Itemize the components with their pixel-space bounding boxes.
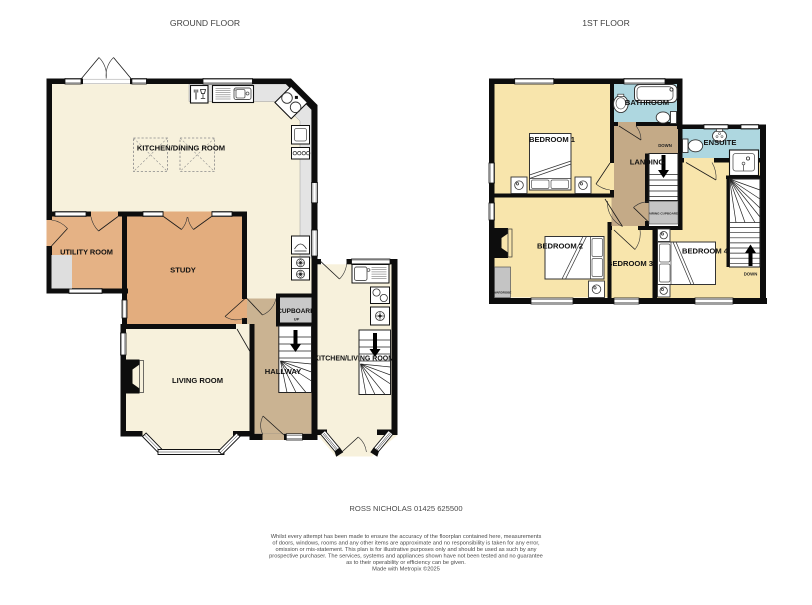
svg-text:of doors, windows, rooms and a: of doors, windows, rooms and any other i…: [272, 540, 540, 546]
svg-text:WARDROBE: WARDROBE: [494, 291, 512, 295]
svg-text:as to their operability or eff: as to their operability or efficiency ca…: [346, 560, 466, 566]
svg-text:omission or mis-statement. Thi: omission or mis-statement. This plan is …: [275, 547, 536, 553]
svg-text:DOWN: DOWN: [658, 143, 672, 148]
svg-text:KITCHEN/DINING ROOM: KITCHEN/DINING ROOM: [137, 144, 225, 153]
svg-text:CUPBOARD: CUPBOARD: [277, 308, 315, 315]
svg-text:DOWN: DOWN: [744, 272, 758, 277]
svg-text:GROUND FLOOR: GROUND FLOOR: [170, 18, 240, 28]
svg-text:ENSUITE: ENSUITE: [704, 138, 737, 147]
svg-text:STUDY: STUDY: [170, 266, 196, 275]
svg-text:Whilst every attempt has been: Whilst every attempt has been made to en…: [271, 534, 542, 540]
svg-text:BEDROOM 3: BEDROOM 3: [607, 259, 653, 268]
svg-text:UP: UP: [294, 317, 300, 322]
svg-text:BEDROOM 4: BEDROOM 4: [682, 247, 729, 256]
svg-text:BATHROOM: BATHROOM: [625, 98, 669, 107]
svg-text:KITCHEN/LIVING ROOM: KITCHEN/LIVING ROOM: [314, 356, 394, 363]
svg-text:HALLWAY: HALLWAY: [265, 367, 301, 376]
svg-text:1ST FLOOR: 1ST FLOOR: [582, 18, 630, 28]
svg-text:Made with Metropix ©2025: Made with Metropix ©2025: [372, 565, 440, 572]
svg-text:prospective purchaser. The ser: prospective purchaser. The services, sys…: [269, 553, 543, 559]
svg-text:AIRING CUPBOARD: AIRING CUPBOARD: [649, 212, 679, 216]
svg-text:BEDROOM 2: BEDROOM 2: [537, 242, 583, 251]
svg-text:ROSS NICHOLAS 01425 625500: ROSS NICHOLAS 01425 625500: [349, 504, 462, 513]
svg-text:UTILITY ROOM: UTILITY ROOM: [60, 248, 113, 257]
svg-text:BEDROOM 1: BEDROOM 1: [529, 135, 576, 144]
svg-text:LANDING: LANDING: [630, 158, 665, 167]
svg-text:LIVING ROOM: LIVING ROOM: [172, 376, 223, 385]
